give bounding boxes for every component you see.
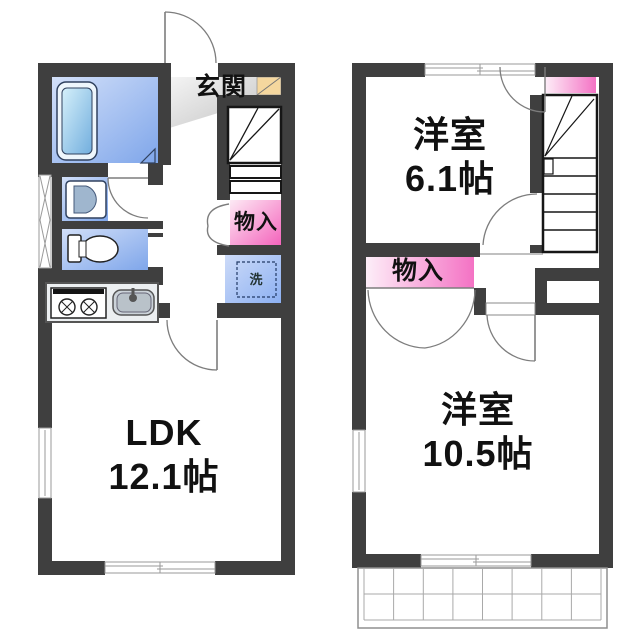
toilet-icon [68,235,118,262]
bedroom2-room-name: 洋室 [422,388,533,432]
floorplan-canvas: 玄関 物入 洗 LDK 12.1帖 洋室 6.1帖 物入 洋室 10.5帖 [0,0,640,640]
closet-2f-label: 物入 [392,256,444,287]
bedroom1-top-window-icon [425,64,535,75]
bedroom2-doorway [486,303,535,315]
bedroom1-label: 洋室 6.1帖 [405,113,495,201]
ldk-room-name: LDK [108,411,219,455]
laundry-label: 洗 [249,272,262,288]
ldk-bottom-window-icon [105,562,215,573]
ldk-room-size: 12.1帖 [108,455,219,499]
bedroom1-hall-door-arc [483,194,537,245]
floorplan-graphics [0,0,640,640]
sink-icon [113,288,154,315]
entrance-label: 玄関 [195,72,247,103]
stairs-1f-icon [228,107,281,193]
bedroom2-side-window-icon [353,430,365,492]
stove-icon [51,288,106,318]
ldk-side-window-icon [39,428,51,498]
ldk-label: LDK 12.1帖 [108,411,219,499]
bathroom-louver-window-icon [39,175,51,268]
entrance-door-arc [165,12,216,63]
closet-2f-double-door [366,288,475,348]
ldk-door-arc [167,320,217,370]
bedroom2-room-size: 10.5帖 [422,432,533,476]
bedroom2-door-arc [487,315,535,361]
bedroom2-label: 洋室 10.5帖 [422,388,533,476]
floor2-doors [366,67,545,361]
bedroom1-room-name: 洋室 [405,113,495,157]
bathroom-door-arc [108,178,148,218]
closet-1f-label: 物入 [234,210,278,236]
washbasin-icon [66,181,106,218]
stairs-2f-icon [543,95,597,252]
balcony-grid [358,568,607,628]
kitchen-counter [46,283,158,322]
bedroom1-room-size: 6.1帖 [405,157,495,201]
bedroom2-bottom-window-icon [421,555,531,566]
closet-1f-bifold-door [207,204,229,246]
